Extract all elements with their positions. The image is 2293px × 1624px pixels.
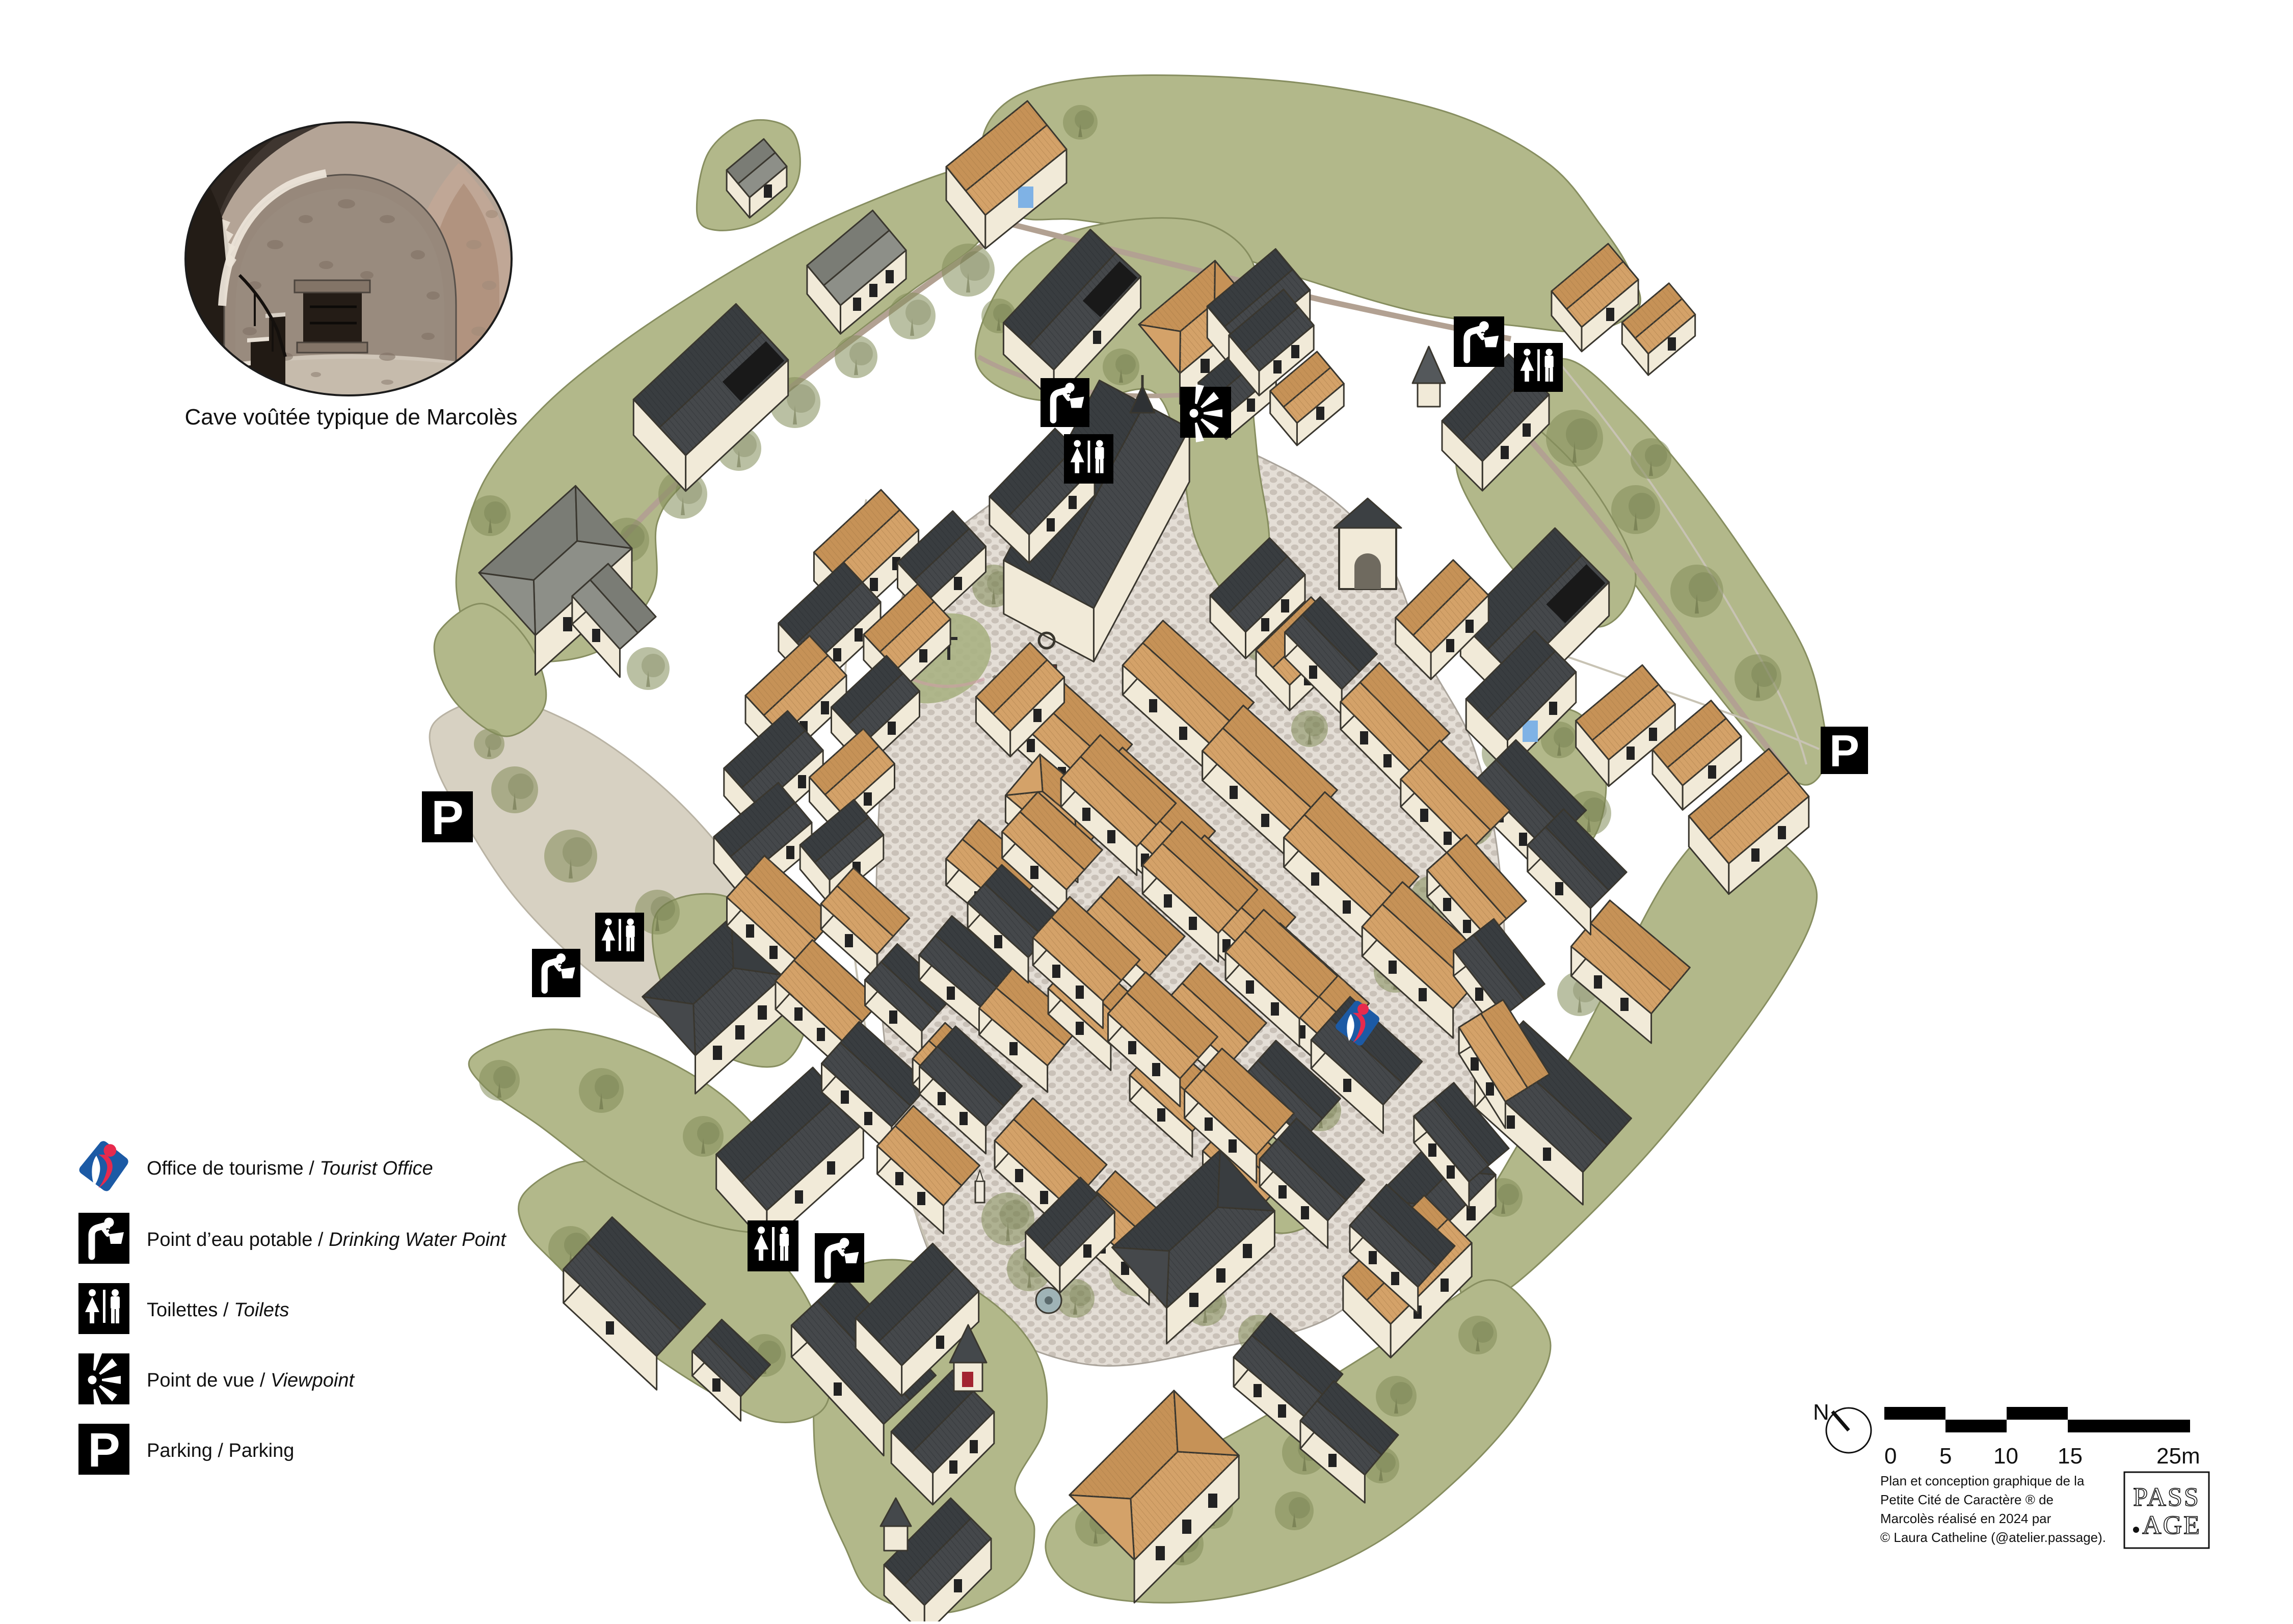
svg-text:Petite Cité de Caractère ® de: Petite Cité de Caractère ® de — [1880, 1492, 2054, 1507]
svg-text:Point de vue / Viewpoint: Point de vue / Viewpoint — [147, 1370, 355, 1391]
svg-text:P: P — [1829, 726, 1859, 776]
svg-text:P: P — [431, 791, 463, 845]
svg-text:Parking / Parking: Parking / Parking — [147, 1440, 294, 1461]
svg-text:Plan et conception graphique d: Plan et conception graphique de la — [1880, 1473, 2085, 1488]
svg-text:Cave voûtée typique de Marcolè: Cave voûtée typique de Marcolès — [184, 405, 517, 430]
svg-text:PASS: PASS — [2133, 1483, 2200, 1512]
svg-text:0: 0 — [1884, 1444, 1897, 1469]
svg-text:© Laura Catheline (@atelier.pa: © Laura Catheline (@atelier.passage). — [1880, 1530, 2106, 1545]
svg-text:Toilettes / Toilets: Toilettes / Toilets — [147, 1299, 289, 1321]
svg-text:25m: 25m — [2156, 1444, 2200, 1469]
svg-text:Office de tourisme / Tourist O: Office de tourisme / Tourist Office — [147, 1158, 433, 1179]
svg-text:Marcolès réalisé en 2024 par: Marcolès réalisé en 2024 par — [1880, 1511, 2051, 1526]
svg-text:15: 15 — [2058, 1444, 2083, 1469]
svg-text:10: 10 — [1993, 1444, 2018, 1469]
svg-text:5: 5 — [1939, 1444, 1952, 1469]
svg-text:Point d’eau potable / Drinking: Point d’eau potable / Drinking Water Poi… — [147, 1229, 506, 1250]
svg-text:AGE: AGE — [2142, 1511, 2201, 1540]
svg-text:P: P — [88, 1423, 120, 1477]
svg-text:N: N — [1813, 1400, 1829, 1425]
